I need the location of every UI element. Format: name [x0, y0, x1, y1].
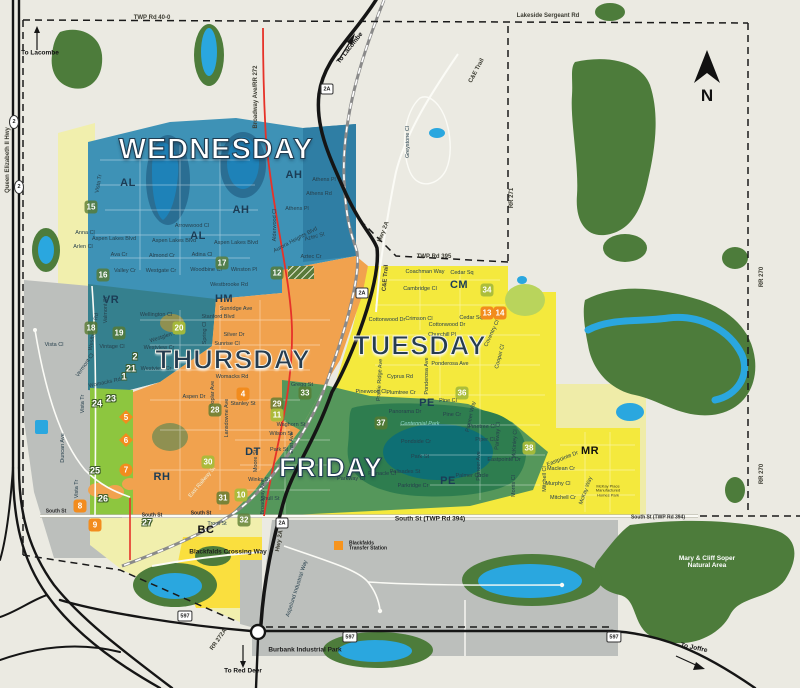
- map-label: Cottonwood Dr: [429, 323, 466, 329]
- map-label: South St (TWP Rd 394): [631, 515, 685, 520]
- map-label: Piper Cl: [475, 438, 495, 444]
- zone-marker: 13: [481, 307, 494, 320]
- highway-shield: 2A: [320, 84, 333, 95]
- zone-marker: 34: [481, 284, 494, 297]
- zone-marker: 14: [494, 307, 507, 320]
- zone-marker: 15: [85, 201, 98, 214]
- map-label: Duncan Ave: [61, 433, 67, 463]
- map-label: Athens Pl: [312, 178, 336, 184]
- zone-marker: 28: [209, 404, 222, 417]
- map-label: Cambridge Cl: [403, 287, 437, 293]
- map-label: To Lacombe: [21, 49, 59, 56]
- map-label: TWP Rd 40-0: [134, 15, 171, 21]
- map-label: Greystone Cl: [406, 126, 412, 158]
- map-label: Queen Elizabeth II Hwy: [5, 127, 11, 193]
- map-label: Vintage Cl: [99, 345, 124, 351]
- label-overlay: TWP Rd 40-0Lakeside Sergeant RdTo Lacomb…: [0, 0, 800, 688]
- highway-shield: 2: [14, 180, 24, 194]
- map-label: Cyprus Rd: [387, 375, 413, 381]
- zone-marker: 11: [271, 409, 284, 422]
- map-label: Aspen Lakes Blvd: [92, 237, 136, 243]
- map-label: RR 271: [509, 188, 515, 208]
- day-label: THURSDAY: [155, 345, 311, 374]
- map-label: Stanford Blvd: [201, 315, 234, 321]
- map-label: Westgate Cr: [146, 269, 176, 275]
- map-label: Parkridge Cr: [398, 484, 429, 490]
- zone-code: BC: [198, 525, 215, 537]
- map-label: RR 272A: [209, 628, 228, 652]
- zone-marker: 10: [235, 489, 248, 502]
- zone-code: RH: [154, 472, 171, 484]
- map-label: Coachman Way: [406, 270, 445, 276]
- map-label: C&E Trail: [382, 264, 391, 291]
- map-label: Stanley St: [230, 402, 255, 408]
- zone-marker: 9: [89, 519, 102, 532]
- map-label: To Joffre: [680, 642, 708, 655]
- map-label: Cedar Sq: [450, 271, 473, 277]
- map-label: Waghorn St: [277, 423, 306, 429]
- map-label: Sunridge Ave: [220, 307, 253, 313]
- zone-code: MR: [581, 446, 599, 458]
- map-label: Eastpointe Dr: [487, 458, 520, 464]
- zone-marker: 37: [375, 417, 388, 430]
- map-label: Almond Cr: [149, 254, 175, 260]
- zone-marker: 4: [237, 388, 250, 401]
- map-label: Mary & Cliff Soper Natural Area: [668, 555, 746, 569]
- map-label: Burbank Industrial Park: [268, 646, 341, 653]
- map-label: East Railway St: [188, 466, 217, 499]
- map-label: Vista Cl: [45, 343, 64, 349]
- map-label: Panorama Dr: [389, 410, 422, 416]
- map-label: Broadway Ave/RR 272: [253, 66, 259, 129]
- zone-marker: 33: [299, 387, 312, 400]
- map-label: Arlen Cl: [73, 245, 93, 251]
- map-label: Broadway Ave: [261, 479, 267, 514]
- map-label: Murphy Cl: [545, 482, 570, 488]
- zone-marker: 8: [74, 500, 87, 513]
- map-label: C&E Trail: [468, 58, 486, 85]
- map-label: Aztec Cr: [300, 255, 321, 261]
- map-label: Aspelund Industrial Way: [286, 560, 310, 618]
- map-label: To Lacombe: [336, 31, 365, 65]
- map-label: Vermont Cl: [76, 353, 96, 379]
- map-label: To Red Deer: [224, 667, 262, 674]
- map-label: Valley Cr: [114, 269, 136, 275]
- zone-code: AH: [286, 170, 303, 182]
- zone-code: PE: [419, 398, 435, 410]
- zone-marker: 17: [216, 257, 229, 270]
- map-label: Morris Cl: [512, 475, 518, 497]
- map-label: Vista Tr: [75, 480, 81, 499]
- zone-marker: 27: [140, 516, 154, 529]
- map-label: Hwy 2A: [275, 530, 285, 552]
- zone-marker: 20: [173, 322, 186, 335]
- zone-code: AL: [190, 231, 206, 243]
- zone-code: VR: [103, 295, 119, 307]
- map-label: RR 270: [759, 267, 765, 287]
- zone-marker: 24: [90, 397, 104, 410]
- map-label: South St (TWP Rd 394): [395, 515, 465, 522]
- highway-shield: 597: [342, 632, 357, 643]
- zone-marker: 12: [271, 267, 284, 280]
- collection-schedule-map: N TWP Rd 40-0Lakeside Sergeant RdTo Laco…: [0, 0, 800, 688]
- zone-marker: 32: [238, 514, 251, 527]
- map-label: Pondside Cr: [401, 440, 431, 446]
- zone-code: DT: [245, 447, 261, 459]
- day-label: TUESDAY: [353, 331, 487, 360]
- highway-shield: 2A: [275, 518, 288, 529]
- map-label: Blackfalds Crossing Way: [189, 548, 266, 555]
- map-label: South St: [46, 509, 67, 514]
- map-label: Maclean Cr: [547, 467, 575, 473]
- map-label: Pinewood Cl: [356, 390, 387, 396]
- map-label: Alderwood Cl: [273, 209, 279, 242]
- zone-marker: 26: [96, 492, 110, 505]
- zone-marker: 7: [120, 464, 133, 477]
- zone-marker: 31: [217, 492, 230, 505]
- zone-marker: 30: [202, 456, 215, 469]
- zone-marker: 38: [523, 442, 536, 455]
- zone-marker: 5: [119, 410, 133, 424]
- map-label: Vista Tr: [81, 395, 87, 414]
- map-label: Ponderosa Ave: [431, 362, 468, 368]
- zone-marker: 19: [113, 327, 126, 340]
- day-label: FRIDAY: [279, 453, 383, 482]
- zone-code: HM: [215, 294, 233, 306]
- map-label: RR 270: [759, 464, 765, 484]
- map-label: Pine Cl: [439, 399, 457, 405]
- map-label: Ava Cr: [111, 253, 128, 259]
- map-label: Blackfalds Transfer Station: [349, 542, 391, 553]
- map-label: Athens Rd: [306, 192, 332, 198]
- map-label: Spring Cl: [203, 322, 209, 345]
- day-label: WEDNESDAY: [119, 134, 314, 165]
- map-label: Lakeside Sergeant Rd: [517, 13, 580, 19]
- map-label: Ponderosa Ave: [425, 357, 431, 394]
- map-label: Westbrooke Rd: [210, 283, 248, 289]
- map-label: Cooper Cl: [495, 344, 507, 369]
- map-label: TWP Rd 395: [417, 254, 452, 260]
- map-label: Vista Tr: [95, 174, 104, 193]
- map-label: Lansdowne Ave: [225, 399, 231, 438]
- map-label: Cottonwood Dr: [369, 318, 406, 324]
- highway-shield: 597: [606, 632, 621, 643]
- highway-shield: 597: [177, 611, 192, 622]
- map-label: Athens Pl: [285, 207, 309, 213]
- map-label: Adina Cl: [192, 253, 213, 259]
- zone-marker: 1: [118, 370, 131, 383]
- zone-marker: 16: [97, 269, 110, 282]
- zone-marker: 6: [119, 433, 133, 447]
- map-label: Silver Dr: [223, 333, 244, 339]
- map-label: South St: [191, 511, 212, 516]
- zone-marker: 36: [456, 387, 469, 400]
- map-label: Palmer Circle: [455, 474, 488, 480]
- map-label: Parkway Cl: [495, 422, 502, 450]
- zone-code: AL: [120, 178, 136, 190]
- map-label: Plumtree Cr: [386, 391, 415, 397]
- map-label: Park St: [411, 455, 429, 461]
- map-label: East Ave: [290, 432, 296, 454]
- zone-marker: 25: [88, 464, 102, 477]
- map-label: Womacks Rd: [216, 375, 249, 381]
- map-label: Pinetree Cl: [468, 425, 495, 431]
- highway-shield: 2: [9, 115, 19, 129]
- zone-code: PE: [440, 476, 456, 488]
- zone-marker: 18: [85, 322, 98, 335]
- highway-shield: 2A: [355, 288, 368, 299]
- map-label: Pine Cr: [443, 413, 461, 419]
- zone-code: CM: [450, 280, 468, 292]
- map-label: Aspen Dr: [183, 395, 206, 401]
- map-label: Centennial Park: [392, 422, 448, 428]
- zone-code: AH: [233, 205, 250, 217]
- map-label: Mitchell Cr: [550, 496, 576, 502]
- zone-marker: 23: [104, 392, 118, 405]
- map-label: Wellington Cl: [140, 313, 172, 319]
- map-label: McKay Place Manufactured Homes Park: [590, 485, 626, 498]
- map-label: Aspen Lakes Blvd: [214, 241, 258, 247]
- map-label: Hwy 2A: [377, 221, 391, 244]
- map-label: McKinley Cl: [512, 429, 519, 458]
- map-label: Winston Pl: [231, 268, 257, 274]
